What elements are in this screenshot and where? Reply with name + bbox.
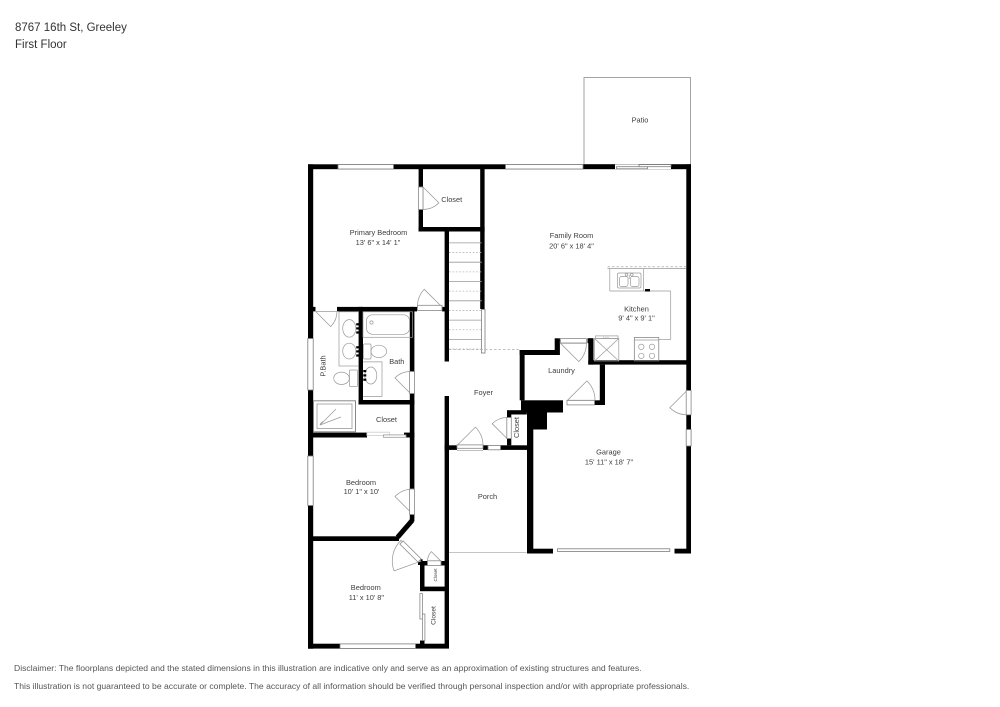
svg-text:First Floor: First Floor <box>15 39 67 51</box>
svg-text:11' x 10' 8": 11' x 10' 8" <box>349 593 385 602</box>
svg-text:P.Bath: P.Bath <box>319 355 328 376</box>
svg-text:Bath: Bath <box>389 357 404 366</box>
svg-text:Primary Bedroom: Primary Bedroom <box>350 228 408 237</box>
svg-text:Closet: Closet <box>441 195 462 204</box>
svg-text:Closet: Closet <box>376 415 397 424</box>
svg-text:10' 1" x 10': 10' 1" x 10' <box>344 487 380 496</box>
svg-text:Bedroom: Bedroom <box>346 478 376 487</box>
svg-text:Garage: Garage <box>596 447 621 456</box>
svg-text:Laundry: Laundry <box>548 366 575 375</box>
svg-text:20' 6" x 18' 4": 20' 6" x 18' 4" <box>549 241 594 250</box>
svg-text:Disclaimer: The floorplans dep: Disclaimer: The floorplans depicted and … <box>14 663 642 673</box>
svg-text:Patio: Patio <box>632 116 649 125</box>
svg-text:Closet: Closet <box>512 417 521 438</box>
svg-text:Bedroom: Bedroom <box>351 583 381 592</box>
svg-text:Closet: Closet <box>431 606 438 625</box>
svg-text:Closet: Closet <box>433 568 438 582</box>
svg-text:Foyer: Foyer <box>474 388 493 397</box>
svg-text:Family Room: Family Room <box>550 231 594 240</box>
svg-text:13' 6" x 14' 1": 13' 6" x 14' 1" <box>356 238 401 247</box>
svg-text:8767 16th St, Greeley: 8767 16th St, Greeley <box>15 22 127 34</box>
svg-text:This illustration is not guara: This illustration is not guaranteed to b… <box>14 681 689 691</box>
svg-text:Kitchen: Kitchen <box>624 304 649 313</box>
svg-text:9' 4" x 9' 1": 9' 4" x 9' 1" <box>618 314 655 323</box>
svg-text:15' 11" x 18' 7": 15' 11" x 18' 7" <box>585 458 634 467</box>
svg-text:Porch: Porch <box>478 492 497 501</box>
